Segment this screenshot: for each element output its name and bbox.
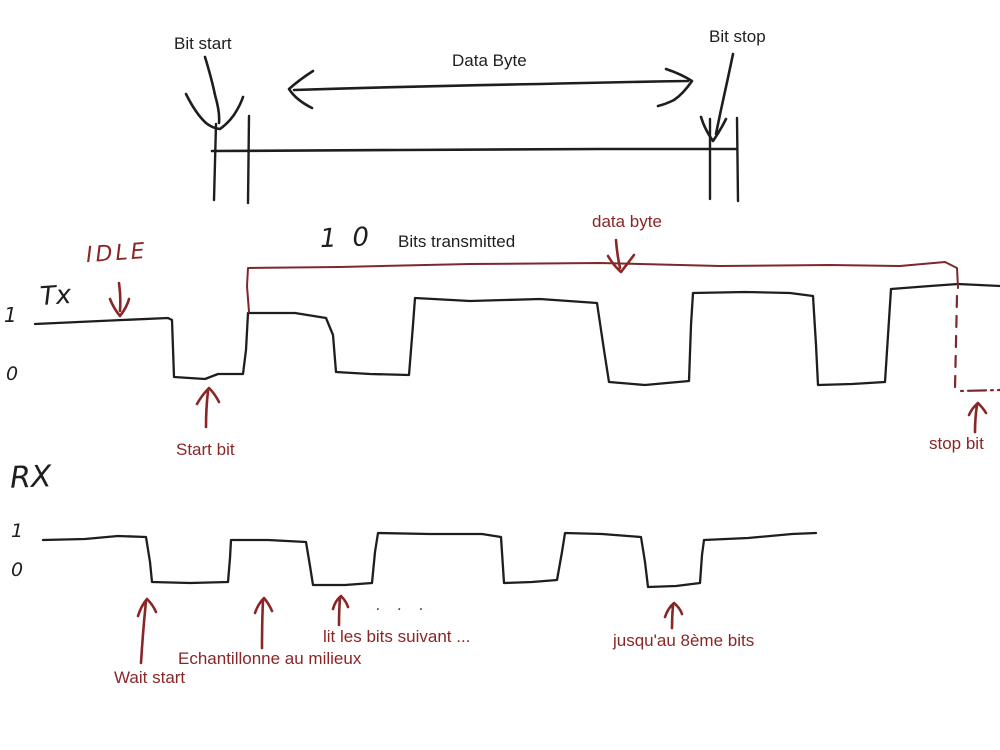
rx-channel-label: RX bbox=[9, 460, 52, 494]
sample-middle-label: Echantillonne au milieux bbox=[178, 650, 361, 669]
bits-transmitted-label: Bits transmitted bbox=[398, 233, 515, 252]
bit-stop-down-arrow bbox=[701, 54, 733, 141]
sample-middle-up-arrow bbox=[255, 598, 272, 648]
tx-level-low-label: 0 bbox=[6, 364, 18, 385]
data-byte-down-arrow bbox=[608, 240, 634, 272]
bit-start-down-arrow bbox=[186, 57, 243, 129]
bit-stop-label: Bit stop bbox=[709, 28, 766, 47]
timeline-line bbox=[212, 149, 737, 151]
stop-bit-up-arrow bbox=[969, 403, 986, 432]
timeline-tick-start-left bbox=[214, 124, 216, 200]
until-8th-bit-label: jusqu'au 8ème bits bbox=[613, 632, 754, 651]
timeline-tick-start-right bbox=[248, 116, 249, 203]
start-bit-up-arrow bbox=[197, 388, 219, 427]
data-byte-outline-dashed-horizontal bbox=[961, 390, 1000, 391]
until-8th-bit-up-arrow bbox=[665, 603, 682, 628]
stop-bit-label: stop bit bbox=[929, 435, 984, 454]
tx-data-byte-label: data byte bbox=[592, 213, 662, 232]
bit-start-label: Bit start bbox=[174, 35, 232, 54]
whiteboard-canvas: Bit start Data Byte Bit stop IDLE Tx 1 0… bbox=[0, 0, 1000, 750]
rx-ellipsis-handwritten: . . . bbox=[376, 597, 430, 614]
idle-down-arrow bbox=[110, 283, 129, 316]
read-next-bits-up-arrow bbox=[333, 596, 348, 625]
wait-start-up-arrow bbox=[138, 599, 156, 663]
bits-count-handwritten: 10 bbox=[320, 223, 386, 254]
rx-level-high-label: 1 bbox=[11, 521, 23, 542]
tx-level-high-label: 1 bbox=[4, 304, 17, 326]
idle-label: IDLE bbox=[85, 240, 148, 268]
rx-level-low-label: 0 bbox=[11, 560, 23, 581]
data-byte-outline-dashed-vertical bbox=[955, 296, 957, 388]
data-byte-top-label: Data Byte bbox=[452, 52, 527, 71]
wait-start-label: Wait start bbox=[114, 669, 185, 688]
uart-diagram-svg bbox=[0, 0, 1000, 750]
rx-waveform bbox=[43, 533, 816, 587]
tx-channel-label: Tx bbox=[39, 281, 72, 312]
data-byte-outline bbox=[247, 262, 958, 312]
tx-waveform bbox=[35, 284, 1000, 385]
timeline-tick-stop-right bbox=[737, 118, 738, 201]
start-bit-label: Start bit bbox=[176, 441, 235, 460]
read-next-bits-label: lit les bits suivant ... bbox=[323, 628, 470, 647]
data-byte-double-arrow bbox=[289, 69, 692, 108]
